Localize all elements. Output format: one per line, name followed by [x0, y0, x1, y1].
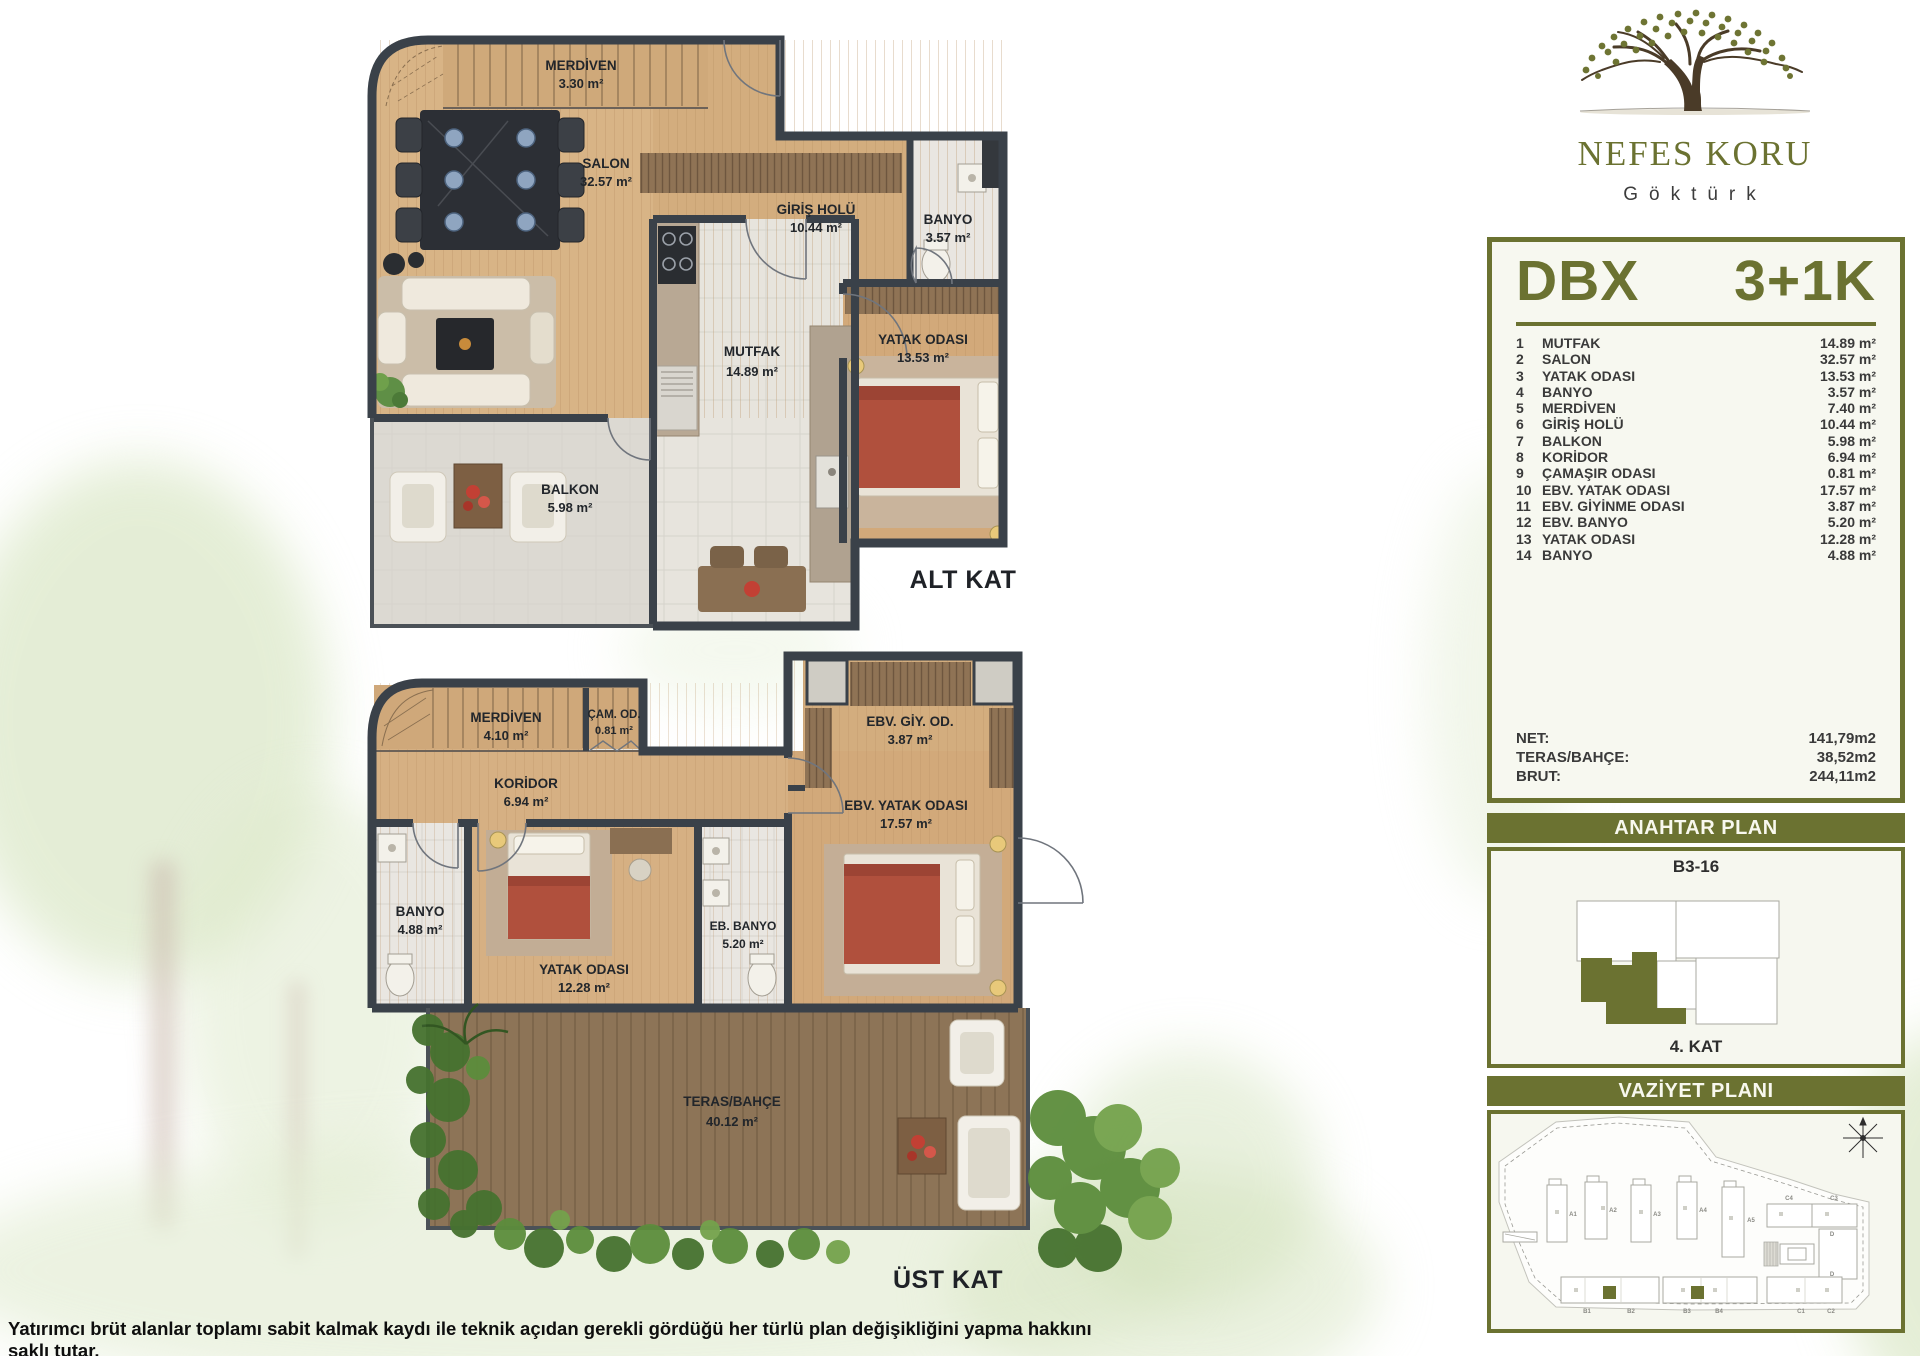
- entry-wardrobe-hatch: [640, 153, 902, 193]
- watercolor-tree-trunk: [288, 980, 306, 1260]
- ust-label-ebvyatak: EBV. YATAK ODASI: [844, 798, 968, 813]
- site-label: A4: [1699, 1208, 1707, 1214]
- room-row: 9ÇAMAŞIR ODASI0.81 m²: [1516, 465, 1876, 481]
- ust-label-banyo: BANYO: [396, 904, 445, 919]
- site-label: C4: [1785, 1196, 1793, 1202]
- ust-label-merdiven: MERDİVEN: [470, 710, 541, 725]
- site-label: D: [1830, 1232, 1835, 1238]
- watercolor-tree-trunk: [150, 860, 176, 1230]
- ust-area-banyo: 4.88 m²: [398, 922, 443, 937]
- master-bedroom: [824, 836, 1006, 996]
- room-row: 1MUTFAK14.89 m²: [1516, 335, 1876, 351]
- ust-kat-caption: ÜST KAT: [883, 1266, 1013, 1295]
- ust-area-ebvgiy: 3.87 m²: [888, 732, 933, 747]
- room-row: 5MERDİVEN7.40 m²: [1516, 400, 1876, 416]
- room-row: 7BALKON5.98 m²: [1516, 433, 1876, 449]
- site-label: B4: [1715, 1309, 1723, 1315]
- alt-area-salon: 32.57 m²: [580, 174, 633, 189]
- disclaimer-text: Yatırımcı brüt alanlar toplamı sabit kal…: [8, 1318, 1128, 1356]
- site-label: A2: [1609, 1208, 1617, 1214]
- room-row: 14BANYO4.88 m²: [1516, 547, 1876, 563]
- ust-area-koridor: 6.94 m²: [504, 794, 549, 809]
- ust-kat-floorplan: MERDİVEN 4.10 m² ÇAM. OD. 0.81 m² KORİDO…: [358, 648, 1258, 1308]
- site-label: C3: [1830, 1196, 1838, 1202]
- ust-label-cam: ÇAM. OD.: [587, 709, 640, 721]
- site-label: C1: [1797, 1309, 1805, 1315]
- site-label: B3: [1683, 1309, 1691, 1315]
- brand-location: Göktürk: [1528, 184, 1862, 206]
- key-plan-box: B3-16 4. KAT: [1487, 847, 1905, 1068]
- ust-area-ebbanyo: 5.20 m²: [722, 937, 763, 951]
- alt-label-balkon: BALKON: [541, 482, 599, 497]
- total-row: TERAS/BAHÇE:38,52m2: [1516, 748, 1876, 767]
- room-row: 4BANYO3.57 m²: [1516, 384, 1876, 400]
- site-plan-header: VAZİYET PLANI: [1487, 1076, 1905, 1106]
- site-label: B1: [1583, 1309, 1591, 1315]
- dining-table: [396, 110, 584, 250]
- alt-label-merdiven: MERDİVEN: [545, 58, 616, 73]
- room-row: 10EBV. YATAK ODASI17.57 m²: [1516, 482, 1876, 498]
- unit-title: DBX 3+1K: [1492, 242, 1900, 314]
- brand-name: NEFES KORU: [1528, 134, 1862, 174]
- site-plan-box: A1 A2 A3 A4 A5 C4 C3 D D B1 B2 B3 B4 C1 …: [1487, 1110, 1905, 1333]
- room-row: 12EBV. BANYO5.20 m²: [1516, 514, 1876, 530]
- ust-label-teras: TERAS/BAHÇE: [683, 1094, 781, 1109]
- unit-code: DBX: [1516, 248, 1639, 314]
- alt-area-balkon: 5.98 m²: [548, 500, 593, 515]
- site-label: B2: [1627, 1309, 1635, 1315]
- site-label: A3: [1653, 1212, 1661, 1218]
- ust-label-ebbanyo: EB. BANYO: [710, 919, 777, 933]
- unit-type: 3+1K: [1734, 248, 1876, 314]
- alt-label-giris: GİRİŞ HOLÜ: [777, 202, 856, 217]
- alt-area-giris: 10.44 m²: [790, 220, 843, 235]
- room-row: 3YATAK ODASI13.53 m²: [1516, 368, 1876, 384]
- brochure-page: MERDİVEN 3.30 m² SALON 32.57 m² GİRİŞ HO…: [0, 0, 1920, 1356]
- ust-label-ebvgiy: EBV. GİY. OD.: [866, 714, 953, 729]
- room-row: 11EBV. GİYİNME ODASI3.87 m²: [1516, 498, 1876, 514]
- alt-area-banyo: 3.57 m²: [926, 230, 971, 245]
- alt-label-banyo: BANYO: [924, 212, 973, 227]
- ust-area-cam: 0.81 m²: [595, 725, 633, 737]
- site-highlight-square: [1691, 1286, 1704, 1299]
- ust-area-ebvyatak: 17.57 m²: [880, 816, 933, 831]
- alt-area-mutfak: 14.89 m²: [726, 364, 779, 379]
- site-label: A5: [1747, 1218, 1755, 1224]
- room-row: 6GİRİŞ HOLÜ10.44 m²: [1516, 416, 1876, 432]
- site-label: A1: [1569, 1212, 1577, 1218]
- ust-area-teras: 40.12 m²: [706, 1114, 759, 1129]
- site-label: D: [1830, 1272, 1835, 1278]
- key-plan-floor-label: 4. KAT: [1491, 1037, 1901, 1057]
- total-row: BRUT:244,11m2: [1516, 767, 1876, 786]
- ust-label-koridor: KORİDOR: [494, 776, 558, 791]
- alt-label-mutfak: MUTFAK: [724, 344, 780, 359]
- room-row: 13YATAK ODASI12.28 m²: [1516, 531, 1876, 547]
- alt-kat-floorplan: MERDİVEN 3.30 m² SALON 32.57 m² GİRİŞ HO…: [358, 26, 1028, 651]
- alt-label-salon: SALON: [582, 156, 629, 171]
- site-highlight-square: [1603, 1286, 1616, 1299]
- room-row: 2SALON32.57 m²: [1516, 351, 1876, 367]
- room-row: 8KORİDOR6.94 m²: [1516, 449, 1876, 465]
- unit-info-panel: DBX 3+1K 1MUTFAK14.89 m² 2SALON32.57 m² …: [1487, 237, 1905, 803]
- alt-kat-caption: ALT KAT: [898, 566, 1028, 595]
- alt-label-yatak: YATAK ODASI: [878, 332, 968, 347]
- key-plan-drawing: [1491, 883, 1893, 1033]
- site-label: C2: [1827, 1309, 1835, 1315]
- ust-area-merdiven: 4.10 m²: [484, 728, 529, 743]
- logo-tree-icon: [1540, 6, 1850, 118]
- alt-area-merdiven: 3.30 m²: [559, 76, 604, 91]
- key-plan-unit-label: B3-16: [1491, 857, 1901, 877]
- total-row: NET:141,79m2: [1516, 729, 1876, 748]
- alt-area-yatak: 13.53 m²: [897, 350, 950, 365]
- title-underline: [1516, 322, 1876, 326]
- room-schedule: 1MUTFAK14.89 m² 2SALON32.57 m² 3YATAK OD…: [1516, 335, 1876, 563]
- ust-area-yatak: 12.28 m²: [558, 980, 611, 995]
- key-plan-header: ANAHTAR PLAN: [1487, 813, 1905, 843]
- site-plan-drawing: A1 A2 A3 A4 A5 C4 C3 D D B1 B2 B3 B4 C1 …: [1491, 1114, 1893, 1321]
- ust-label-yatak: YATAK ODASI: [539, 962, 629, 977]
- area-totals: NET:141,79m2 TERAS/BAHÇE:38,52m2 BRUT:24…: [1516, 729, 1876, 786]
- watercolor-wash: [0, 460, 330, 980]
- compass-icon: [1843, 1118, 1883, 1158]
